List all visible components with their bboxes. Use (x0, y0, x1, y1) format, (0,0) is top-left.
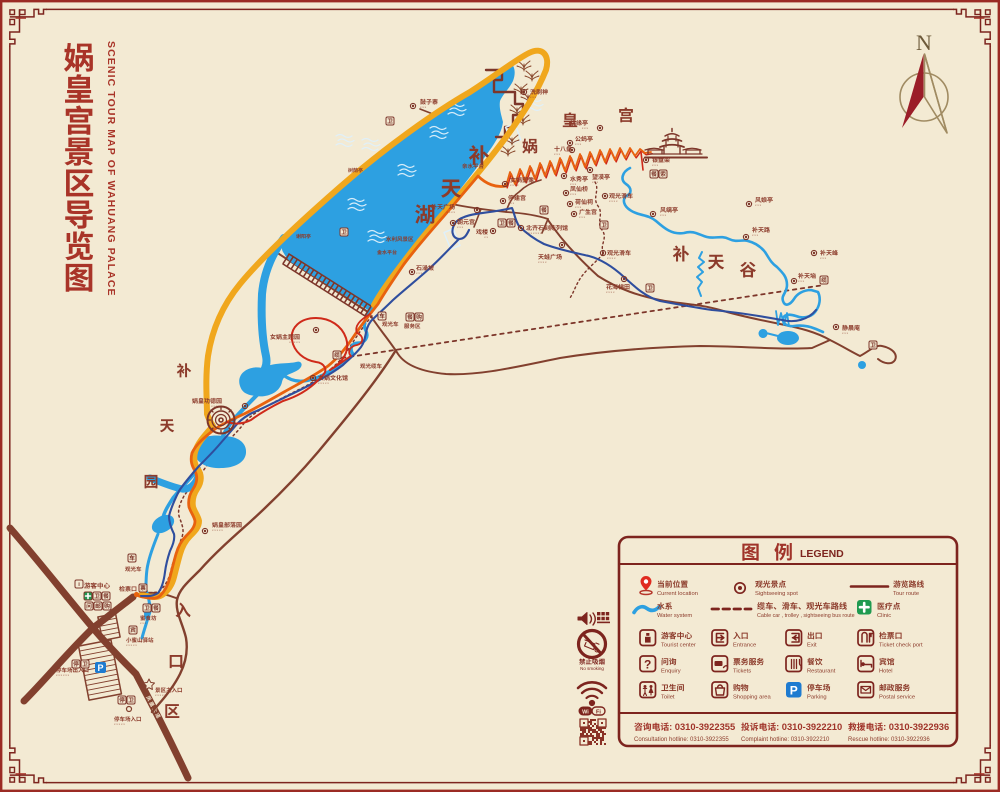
svg-text:x x x: x x x (140, 621, 147, 625)
svg-text:x x x x: x x x x (607, 256, 616, 260)
svg-text:水系: 水系 (657, 601, 673, 612)
svg-text:缆: 缆 (821, 275, 827, 284)
svg-text:x x x x: x x x x (609, 199, 618, 203)
svg-text:天: 天 (708, 248, 725, 273)
svg-text:Enquiry: Enquiry (661, 669, 681, 675)
svg-text:补: 补 (469, 140, 490, 170)
svg-text:当前位置: 当前位置 (657, 579, 688, 590)
svg-text:Rescue hotline: 0310-3922936: Rescue hotline: 0310-3922936 (848, 737, 930, 743)
svg-text:x x x: x x x (457, 225, 464, 229)
svg-text:Clinic: Clinic (877, 613, 891, 619)
svg-text:车: 车 (129, 553, 135, 562)
svg-text:出口: 出口 (807, 631, 823, 642)
svg-text:宾: 宾 (130, 625, 136, 634)
svg-text:补: 补 (673, 240, 690, 265)
svg-text:购物: 购物 (733, 683, 749, 694)
svg-text:Exit: Exit (807, 643, 817, 649)
svg-text:x x x x x: x x x x x (211, 404, 222, 408)
svg-text:x x x: x x x (798, 279, 805, 283)
svg-text:卫: 卫 (499, 218, 505, 227)
svg-text:问: 问 (86, 601, 92, 610)
svg-text:索: 索 (660, 169, 666, 178)
svg-text:观光景点: 观光景点 (755, 579, 786, 590)
svg-text:湖: 湖 (415, 199, 436, 229)
svg-text:x x x: x x x (752, 233, 759, 237)
svg-text:购: 购 (416, 312, 422, 321)
svg-text:邮政服务: 邮政服务 (879, 683, 910, 694)
svg-text:宾馆: 宾馆 (879, 657, 895, 668)
svg-text:金水平台: 金水平台 (377, 249, 397, 256)
svg-text:x x: x x (484, 235, 488, 239)
svg-text:医疗点: 医疗点 (877, 601, 901, 612)
svg-text:问询: 问询 (661, 657, 677, 668)
svg-text:Wi: Wi (582, 710, 589, 716)
svg-text:x x x x x: x x x x x (126, 643, 137, 647)
svg-text:Sightseeing spot: Sightseeing spot (755, 591, 798, 597)
svg-text:x x x x x x x: x x x x x x x (526, 231, 542, 235)
svg-text:图: 图 (64, 253, 95, 298)
svg-text:游览路线: 游览路线 (893, 579, 924, 590)
svg-text:观光缆车: 观光缆车 (360, 362, 383, 370)
svg-text:Restaurant: Restaurant (807, 669, 836, 675)
svg-text:检票口: 检票口 (119, 584, 137, 593)
svg-text:补: 补 (176, 360, 191, 381)
svg-text:皇: 皇 (562, 107, 578, 131)
svg-text:x x x x: x x x x (446, 210, 455, 214)
svg-text:咨询电话: 0310-3922355: 咨询电话: 0310-3922355 (634, 720, 735, 733)
svg-text:餐: 餐 (508, 218, 514, 227)
svg-text:x x x: x x x (420, 105, 427, 109)
svg-text:Postal service: Postal service (879, 695, 915, 701)
svg-text:x x x x: x x x x (538, 260, 547, 264)
svg-text:Water system: Water system (657, 613, 692, 619)
svg-text:宫: 宫 (618, 102, 634, 126)
svg-text:x x x: x x x (842, 331, 849, 335)
svg-text:卫: 卫 (144, 603, 150, 612)
svg-text:娲: 娲 (522, 133, 538, 157)
svg-text:SCENIC TOUR MAP OF WAHUANG PAL: SCENIC TOUR MAP OF WAHUANG PALACE (105, 41, 117, 297)
svg-text:餐饮: 餐饮 (807, 657, 823, 668)
svg-text:x x x x x x: x x x x x x (56, 673, 70, 677)
svg-text:x x x x: x x x x (510, 183, 519, 187)
svg-text:x x x: x x x (575, 142, 582, 146)
svg-text:停车场: 停车场 (807, 683, 831, 694)
svg-text:谷: 谷 (740, 256, 757, 281)
svg-text:Toilet: Toilet (661, 695, 675, 701)
svg-text:Tickets: Tickets (733, 669, 751, 675)
svg-text:水利风景区: 水利风景区 (386, 235, 414, 243)
svg-text:Parking: Parking (807, 695, 827, 701)
svg-text:Shopping area: Shopping area (733, 695, 771, 701)
svg-text:Cable car , trolley , sightsee: Cable car , trolley , sightseeing bus ro… (757, 613, 855, 619)
svg-text:票务服务: 票务服务 (733, 657, 764, 668)
svg-text:卫生间: 卫生间 (661, 683, 685, 694)
svg-text:x x x: x x x (416, 271, 423, 275)
svg-text:x x x x x: x x x x x (318, 381, 329, 385)
svg-text:入: 入 (175, 597, 191, 621)
svg-text:服务区: 服务区 (404, 322, 421, 330)
svg-text:Hotel: Hotel (879, 669, 893, 675)
svg-text:Fi: Fi (596, 710, 601, 716)
svg-text:x x x: x x x (530, 95, 537, 99)
svg-text:x x x: x x x (652, 163, 659, 167)
svg-text:卫: 卫 (128, 695, 134, 704)
svg-text:车: 车 (379, 311, 385, 320)
svg-text:Current location: Current location (657, 591, 698, 597)
svg-text:禁止吸烟: 禁止吸烟 (579, 656, 606, 666)
svg-text:x x x x x: x x x x x (114, 722, 125, 726)
svg-text:购: 购 (104, 601, 110, 610)
svg-text:游客中心: 游客中心 (84, 580, 111, 590)
svg-text:票: 票 (140, 583, 146, 592)
svg-text:餐: 餐 (103, 591, 109, 600)
svg-text:缆车、滑车、观光车路线: 缆车、滑车、观光车路线 (757, 600, 847, 612)
svg-text:餐: 餐 (407, 312, 413, 321)
svg-text:x x x: x x x (582, 126, 589, 130)
svg-text:?: ? (644, 658, 651, 672)
svg-text:停: 停 (73, 659, 79, 668)
svg-text:邮: 邮 (95, 601, 101, 610)
svg-text:卫: 卫 (647, 283, 653, 292)
svg-text:x x x: x x x (755, 203, 762, 207)
svg-text:卫: 卫 (387, 116, 393, 125)
svg-text:区: 区 (164, 698, 180, 722)
svg-text:游客中心: 游客中心 (661, 631, 692, 642)
svg-text:P: P (97, 663, 103, 673)
svg-text:x x x x x: x x x x x (155, 693, 166, 697)
svg-text:餐: 餐 (541, 205, 547, 214)
svg-text:园: 园 (143, 471, 158, 492)
svg-text:x x x: x x x (579, 215, 586, 219)
svg-text:检票口: 检票口 (879, 631, 902, 642)
svg-text:Tour route: Tour route (893, 591, 919, 597)
svg-text:x x x: x x x (508, 201, 515, 205)
svg-text:x x x x x: x x x x x (289, 340, 300, 344)
svg-text:停: 停 (119, 695, 125, 704)
svg-text:缆: 缆 (334, 350, 340, 359)
svg-text:Consultation hotline: 0310-392: Consultation hotline: 0310-3922355 (634, 737, 729, 743)
svg-text:x x x: x x x (554, 152, 561, 156)
svg-text:P: P (790, 684, 798, 698)
svg-text:Complaint hotline: 0310-392221: Complaint hotline: 0310-3922210 (741, 737, 830, 743)
svg-text:x x x: x x x (592, 180, 599, 184)
svg-text:天: 天 (441, 173, 462, 203)
svg-text:x x x x: x x x x (606, 290, 615, 294)
svg-text:投诉电话: 0310-3922210: 投诉电话: 0310-3922210 (741, 720, 842, 733)
svg-text:天: 天 (159, 415, 174, 436)
svg-text:观光车: 观光车 (125, 565, 142, 573)
svg-text:餐: 餐 (651, 169, 657, 178)
svg-text:树荫亭: 树荫亭 (348, 167, 363, 174)
svg-text:卫: 卫 (601, 220, 607, 229)
svg-text:入口: 入口 (733, 631, 749, 642)
svg-text:N: N (916, 30, 932, 55)
svg-text:餐: 餐 (153, 603, 159, 612)
svg-text:Tourist center: Tourist center (661, 643, 696, 649)
svg-text:x x x: x x x (820, 256, 827, 260)
svg-text:口: 口 (168, 648, 184, 672)
svg-text:LEGEND: LEGEND (800, 548, 844, 560)
svg-text:卫: 卫 (94, 591, 100, 600)
svg-text:x x x: x x x (660, 213, 667, 217)
svg-text:图例: 图例 (741, 538, 807, 565)
svg-text:卫: 卫 (870, 340, 876, 349)
svg-text:No smoking: No smoking (580, 666, 604, 671)
svg-text:Ticket check port: Ticket check port (879, 643, 923, 649)
svg-text:x x x: x x x (570, 192, 577, 196)
svg-text:谢阳亭: 谢阳亭 (296, 233, 311, 240)
svg-text:卫: 卫 (82, 659, 88, 668)
svg-text:救援电话: 0310-3922936: 救援电话: 0310-3922936 (848, 720, 949, 733)
svg-text:观光车: 观光车 (382, 320, 399, 328)
svg-text:x x x x x: x x x x x (212, 528, 223, 532)
svg-text:Entrance: Entrance (733, 643, 756, 649)
svg-text:卫: 卫 (341, 227, 347, 236)
